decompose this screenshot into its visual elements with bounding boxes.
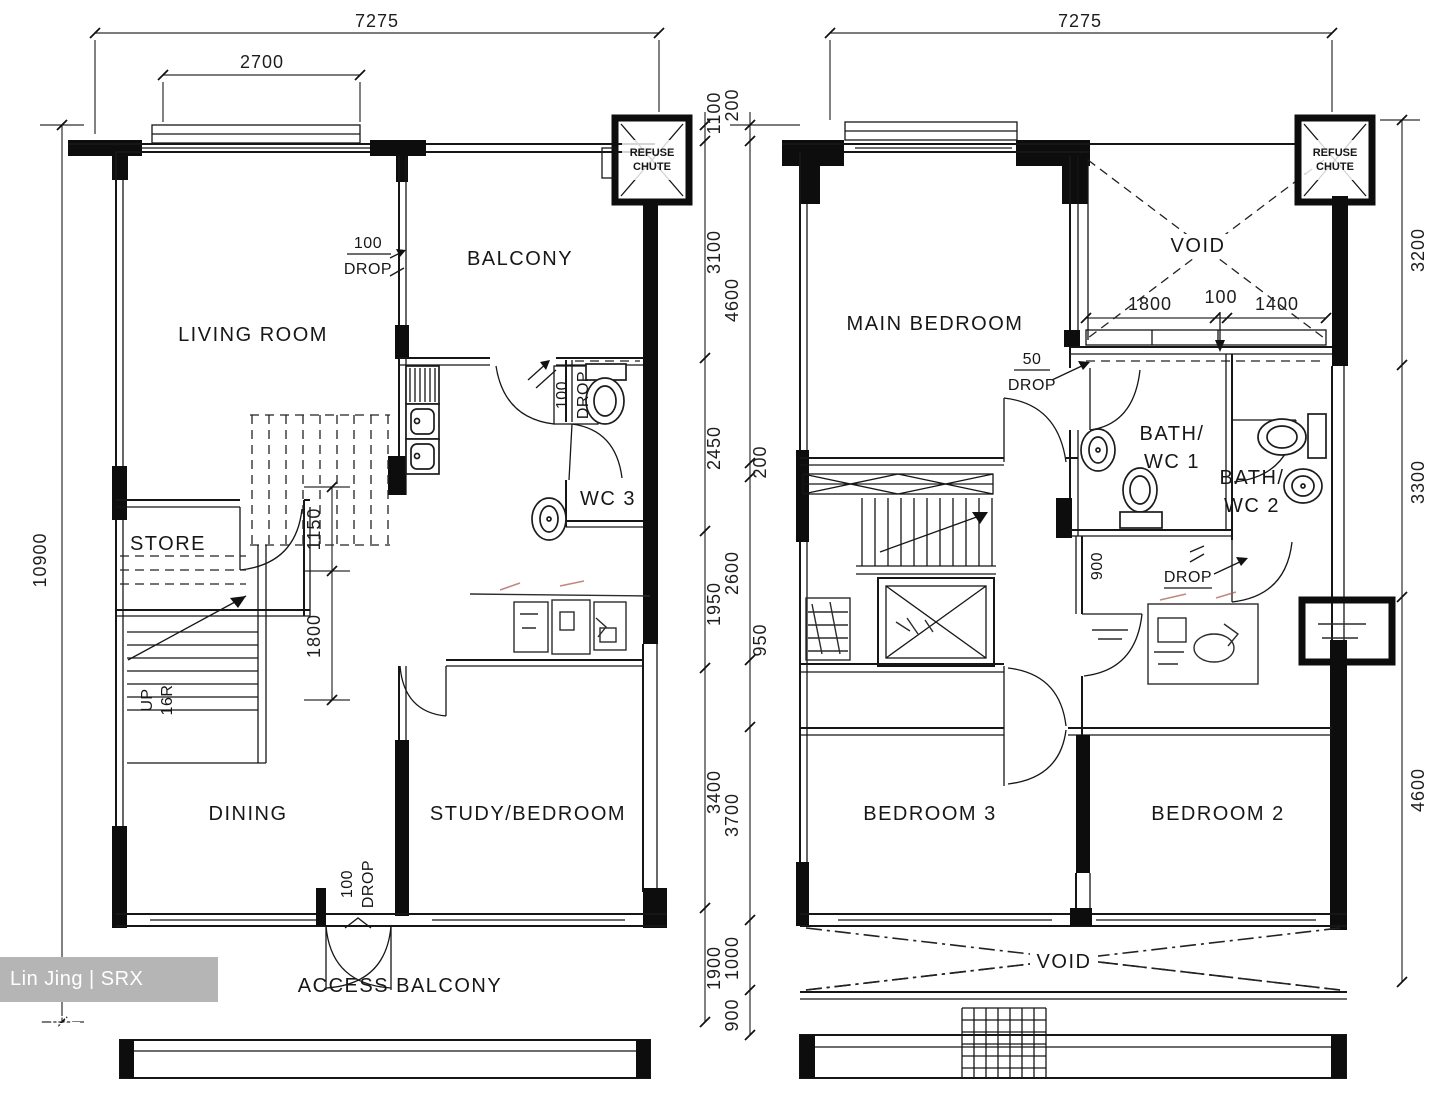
room-label-dining: DINING: [209, 803, 288, 825]
dim-right-total-width: 7275: [825, 11, 1337, 120]
refuse-chute-right-label2: CHUTE: [1316, 161, 1354, 173]
dim-label-100: 100: [1204, 287, 1237, 307]
dim-label-900: 900: [722, 998, 742, 1031]
bath2-fixtures: [1258, 414, 1326, 503]
dim-label-200a: 200: [722, 88, 742, 121]
vanity-sketch: [1092, 592, 1258, 684]
dim-label-7275-right: 7275: [1058, 11, 1102, 31]
room-label-void-lower: VOID: [1037, 951, 1092, 973]
room-label-store: STORE: [130, 533, 206, 555]
door-arc-balcony-kitchen: [496, 366, 554, 424]
drop-entry-word: DROP: [360, 860, 377, 908]
room-label-bath1-l1: BATH/: [1140, 423, 1205, 445]
stair-up-label: UP: [139, 688, 156, 711]
door-arc-bath2-lower: [1232, 540, 1292, 602]
stairs-left: UP 16R: [120, 415, 390, 763]
floorplan-page: 7275 2700 10900 1100 3100: [0, 0, 1440, 1102]
dim-void-strip: 1800 100 1400: [1081, 287, 1331, 352]
dim-label-4600a: 4600: [722, 278, 742, 322]
right-plan-slab: [800, 1008, 1346, 1078]
right-plan: 7275 200 4600 200 2600 950 3700 1000 900: [722, 11, 1428, 1078]
refuse-chute-left: REFUSE CHUTE: [602, 118, 689, 202]
room-label-access-balcony: ACCESS BALCONY: [298, 975, 502, 997]
room-label-wc3: WC 3: [580, 488, 636, 510]
kitchen-counter-sketch: [470, 581, 650, 654]
dim-label-1950: 1950: [704, 582, 724, 626]
dim-label-2600: 2600: [722, 551, 742, 595]
stair-risers-label: 16R: [159, 685, 176, 716]
room-label-bedroom3: BEDROOM 3: [863, 803, 997, 825]
door-arc-main-bedroom: [1004, 398, 1066, 462]
drop-balcony-num: 100: [354, 235, 382, 252]
drop-bath1-num: 50: [1023, 351, 1042, 368]
room-label-balcony: BALCONY: [467, 248, 573, 270]
access-balcony-slab: [120, 1040, 650, 1078]
dim-label-1400: 1400: [1255, 294, 1299, 314]
room-label-bath1-l2: WC 1: [1144, 451, 1200, 473]
room-label-bath2-l2: WC 2: [1224, 495, 1280, 517]
drop-bath1-word: DROP: [1008, 377, 1056, 394]
dim-label-3200: 3200: [1408, 228, 1428, 272]
refuse-chute-right-label1: REFUSE: [1313, 147, 1358, 159]
drop-kitchen-num: 100: [554, 381, 571, 409]
room-label-bedroom2: BEDROOM 2: [1151, 803, 1285, 825]
dim-label-2700: 2700: [240, 52, 284, 72]
dim-left-right-column: 1100 3100 2450 1950 3400 1900: [700, 92, 724, 1027]
drop-entry-num: 100: [339, 870, 356, 898]
kitchen-sink: [406, 366, 439, 474]
door-arc-corridor: [1082, 614, 1142, 676]
drop-kitchen-word: DROP: [575, 371, 592, 419]
door-arc-wc3: [569, 424, 622, 480]
door-arc-vestibule-1: [1008, 668, 1066, 726]
drop-corridor-num: 900: [1089, 552, 1106, 580]
door-arc-bath1: [1090, 368, 1140, 430]
watermark: Lin Jing | SRX PROPERTY: [0, 957, 218, 1002]
door-arc-vestibule-2: [1008, 730, 1066, 784]
dim-label-3100: 3100: [704, 230, 724, 274]
refuse-chute-left-label2: CHUTE: [633, 161, 671, 173]
dim-label-3400: 3400: [704, 770, 724, 814]
room-label-bath2-l1: BATH/: [1220, 467, 1285, 489]
dim-label-1000: 1000: [722, 936, 742, 980]
room-label-main-bedroom: MAIN BEDROOM: [847, 313, 1024, 335]
room-label-living: LIVING ROOM: [178, 324, 328, 346]
right-plan-lower-void: VOID: [800, 928, 1347, 999]
dim-label-7275-left: 7275: [355, 11, 399, 31]
dim-label-1800: 1800: [1128, 294, 1172, 314]
dim-label-200b: 200: [750, 445, 770, 478]
garbled-text-mark: [1092, 630, 1128, 639]
room-label-study: STUDY/BEDROOM: [430, 803, 626, 825]
floorplan-drawing: 7275 2700 10900 1100 3100: [0, 0, 1440, 1102]
drop-corridor-word: DROP: [1164, 569, 1212, 586]
dim-right-left-column: 200 4600 200 2600 950 3700 1000 900: [722, 88, 800, 1040]
dim-label-3300: 3300: [1408, 460, 1428, 504]
dim-label-10900: 10900: [30, 532, 50, 587]
room-label-void-upper: VOID: [1171, 235, 1226, 257]
stairs-right: [803, 474, 996, 666]
slab-grid-hatch: [962, 1008, 1046, 1078]
right-plan-annotations: 50 DROP 900 DROP: [1008, 351, 1248, 588]
door-arc-study: [400, 666, 446, 716]
refuse-chute-right: REFUSE CHUTE: [1298, 118, 1372, 202]
dim-left-total-width: 7275: [90, 11, 664, 134]
drop-balcony-word: DROP: [344, 261, 392, 278]
stair-cabinet-sketch: [806, 598, 850, 660]
dim-left-stair-column: 1150 1800: [304, 482, 350, 705]
dim-label-2450: 2450: [704, 426, 724, 470]
dim-left-total-height: 10900: [30, 120, 84, 1027]
dim-label-3700: 3700: [722, 793, 742, 837]
dim-label-950: 950: [750, 623, 770, 656]
stair-void-scribble: [896, 618, 933, 634]
dim-label-1150: 1150: [304, 508, 324, 551]
dim-label-1900: 1900: [704, 946, 724, 990]
dim-label-4600b: 4600: [1408, 768, 1428, 812]
dim-left-bay-window: 2700: [158, 52, 365, 122]
door-arc-store: [240, 507, 302, 570]
dim-right-right-column: 3200 3300 4600: [1380, 115, 1428, 987]
dim-label-1100: 1100: [704, 92, 724, 135]
refuse-chute-left-label1: REFUSE: [630, 147, 675, 159]
dim-label-1800: 1800: [304, 614, 324, 658]
left-plan: 7275 2700 10900 1100 3100: [30, 11, 724, 1078]
